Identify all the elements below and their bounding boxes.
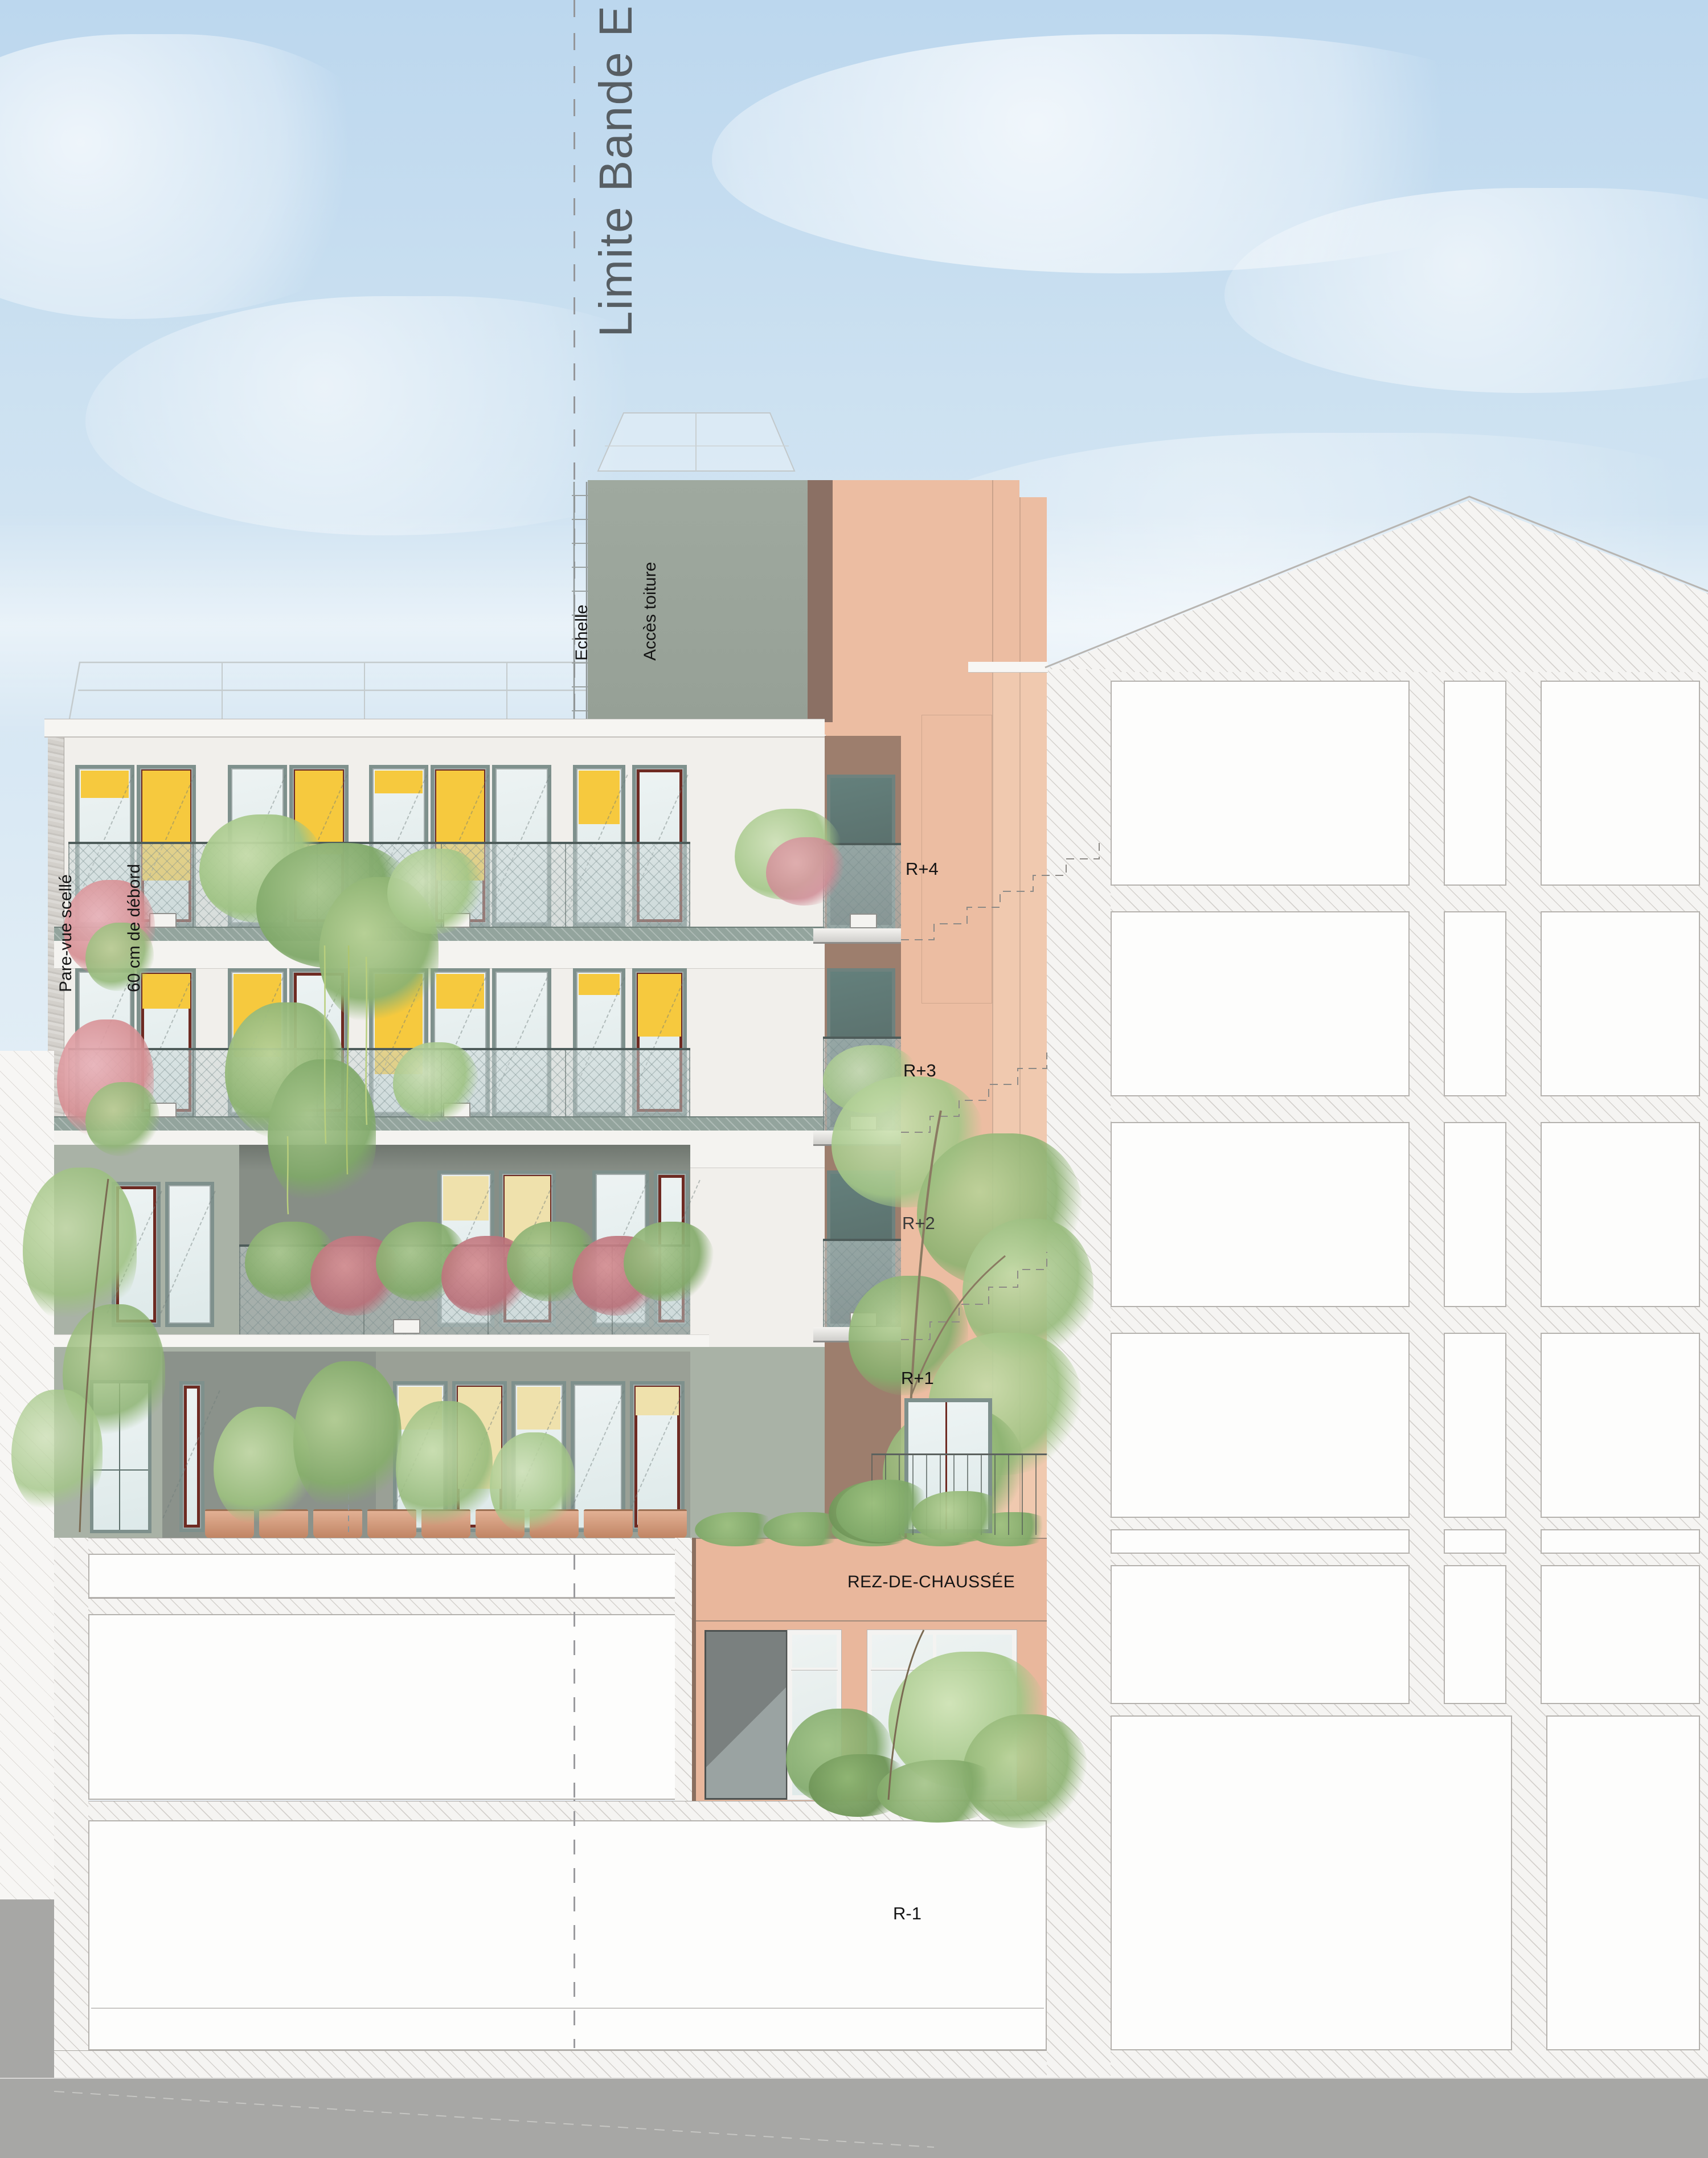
floor-label-r2: R+2 (902, 1213, 935, 1234)
roof-access-label-line1: Echelle (571, 562, 593, 661)
roof-access-label: Echelle Accès toiture (525, 562, 707, 661)
limite-bande-e-label: Limite Bande E (589, 5, 644, 337)
pare-vue-label: Pare-vue scellé 60 cm de débord (9, 864, 191, 992)
roof-access-label-line2: Accès toiture (639, 562, 662, 661)
floor-label-r1: R+1 (901, 1368, 934, 1389)
floor-label-r4: R+4 (906, 859, 939, 880)
floor-label-r-1: R-1 (893, 1903, 921, 1924)
floor-label-rdc: REZ-DE-CHAUSSÉE (847, 1572, 1015, 1592)
foliage (911, 1491, 1008, 1542)
pare-vue-label-line1: Pare-vue scellé (55, 864, 77, 992)
pare-vue-label-line2: 60 cm de débord (123, 864, 146, 992)
drawing-layers (0, 0, 1708, 2158)
floor-label-r3: R+3 (903, 1060, 936, 1082)
elevation-drawing: Limite Bande E Echelle Accès toiture Par… (0, 0, 1708, 2158)
front-linework (0, 0, 1708, 2158)
